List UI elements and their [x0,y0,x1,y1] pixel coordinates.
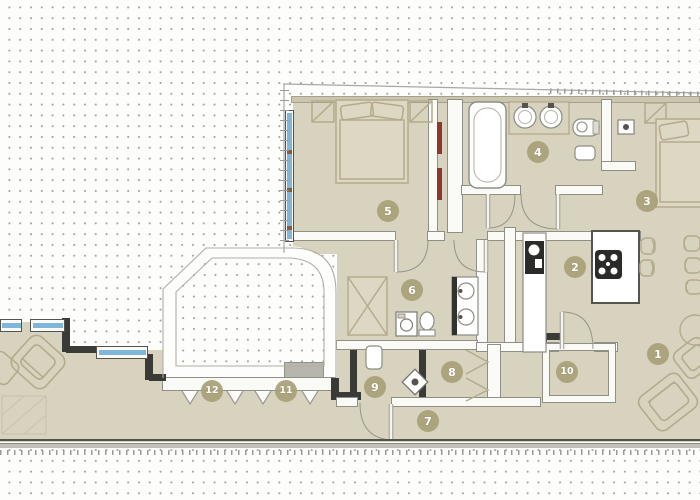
wall-unit-room3-icon [618,120,634,134]
room-badge-9: 9 [364,376,386,398]
fence-ticks [0,450,700,455]
room-badge-12: 12 [201,380,223,402]
room-badge-8: 8 [441,361,463,383]
sofa-room1-icon [635,370,700,434]
terrace-outline [163,248,336,378]
armchair-wing-icon [0,332,68,393]
toilet-room6-icon [419,312,435,336]
room-badge-6: 6 [401,279,423,301]
boundary-ticks-left [280,90,289,250]
room-badge-3: 3 [636,190,658,212]
furniture-linework [0,0,700,500]
fence-line-light [0,443,700,448]
bidet-icon [575,146,595,160]
closet-x-icon [348,277,387,335]
room-badge-10: 10 [556,361,578,383]
fence-line-dark [0,439,700,441]
room-badge-7: 7 [417,410,439,432]
room-badge-4: 4 [527,141,549,163]
water-heater-icon [366,346,382,369]
room-badge-5: 5 [377,200,399,222]
toilet-room4-icon [573,119,599,136]
room-badge-2: 2 [564,256,586,278]
vanity-double-sink-icon [452,277,478,335]
bathtub-icon [469,102,506,188]
wardrobe-chevrons-icon [466,350,488,401]
double-bed-icon [312,100,432,183]
dining-chairs-icon [640,236,700,294]
room-badge-1: 1 [647,343,669,365]
fan-diamond-icon [402,369,427,394]
floor-plan-canvas: 1 2 3 4 5 6 7 8 9 10 11 12 [0,0,700,500]
double-sink-icon [509,102,569,134]
kitchen-counter-icon [523,233,546,352]
rug-icon [2,396,46,434]
room-badge-11: 11 [275,380,297,402]
kitchen-island-cooktop-icon [592,231,639,303]
washing-machine-icon [396,312,417,336]
